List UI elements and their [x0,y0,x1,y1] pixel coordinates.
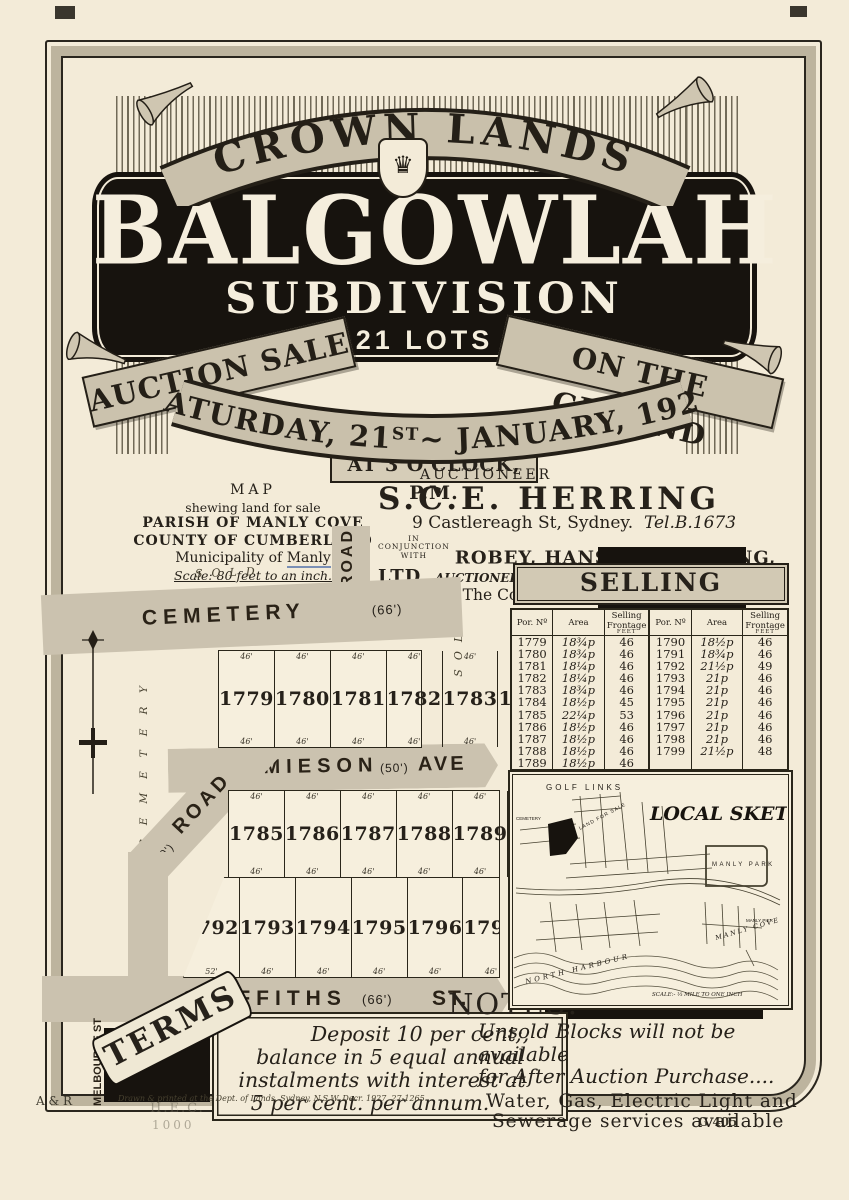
frontage-label: 46' [453,792,508,801]
lot-number: 1786 [285,823,340,845]
notes-line4: Sewerage services available [492,1112,798,1133]
frontage-label: 46' [285,792,340,801]
land-for-sale-block [548,818,578,856]
frontage-label: 46' [219,737,274,746]
frontage-label: 46' [387,652,442,661]
selling-frontages-title: SELLING FRONTAGES [513,563,789,605]
scan-mark [55,6,75,19]
scan-mark [790,6,807,17]
lot-number: 1789 [453,823,508,845]
cemetery-small-label: CEMETERY [516,816,541,821]
legend-title: MAP [128,482,378,500]
lot-1781: 46'178146' [330,651,386,747]
lot-number: 1781 [331,688,386,710]
local-sketch-box: GOLF LINKS LAND FOR SALE CEMETERY LOCAL … [508,770,793,1010]
lot-number: 1787 [341,823,396,845]
frontage-label: 46' [387,737,442,746]
crest-icon: ♛ [378,138,428,198]
lot-1785: 46'178546' [229,791,284,877]
lot-1780: 46'178046' [274,651,330,747]
col-header-portion: Por. Nº [649,609,691,636]
lot-number: 1783 [443,688,498,710]
lot-1782: 46'178246' [386,651,442,747]
lot-1786: 46'178646' [284,791,340,877]
cemetery-road-label: CEMETERY [141,600,306,631]
frontage-row: 177918¾p46179018½p46 [511,636,788,649]
local-sketch-title: LOCAL SKETCH [649,803,787,825]
feet-unit-label: FEET [605,631,649,634]
auctioneer-address: 9 Castlereagh St, Sydney. [412,513,633,533]
legend-municipality: Municipality of [175,550,286,566]
frontage-label: 46' [443,737,498,746]
frontage-label: 46' [341,867,396,876]
legend-line1: shewing land for sale [128,500,378,516]
lot-block-row1: 46'177946'46'178046'46'178146'46'178246'… [218,650,422,748]
frontage-label: 46' [443,652,498,661]
notes-line1: Unsold Blocks will not be available [478,1020,798,1065]
stamp-1000: 1000 [152,1118,195,1132]
sold-label: SOLD [195,565,264,580]
frontage-label: 46' [285,867,340,876]
lot-1793: 179346' [239,878,295,977]
frontage-label: 46' [331,652,386,661]
conjunction-label: IN CONJUNCTION WITH [378,535,450,560]
lot-1795: 179546' [351,878,407,977]
frontage-label: 46' [275,737,330,746]
frontage-row: 178418½p45179521p46 [511,696,788,708]
lot-1796: 179646' [407,878,463,977]
frontage-label: 46' [275,652,330,661]
frontage-row: 178522¼p53179621p46 [511,709,788,721]
date-banner: SATURDAY, 21ST~ JANUARY, 1928 [150,380,714,484]
cemetery-road-width: (66') [372,601,403,617]
col-header-frontage: Selling FrontageFEET [743,609,788,636]
feet-unit-label: FEET [743,631,787,634]
col-header-area: Area [691,609,743,636]
golf-links-label: GOLF LINKS [546,783,623,792]
lot-1783: 46'178346' [442,651,498,747]
lot-number: 1785 [229,823,284,845]
col-header-frontage: Selling FrontageFEET [604,609,649,636]
manly-park-label: MANLY PARK [712,862,775,868]
frontage-row: 178018¾p46179118¾p46 [511,648,788,660]
jamieson-ave-suffix: AVE [418,753,467,777]
north-arrow [78,628,108,800]
col-header-portion: Por. Nº [511,609,553,636]
lot-number: 1795 [352,917,407,939]
lot-number: 1788 [397,823,452,845]
lot-number: 1793 [240,917,295,939]
frontage-label: 46' [296,967,351,976]
frontage-row: 178918½p46 [511,757,788,770]
col-header-area: Area [553,609,605,636]
notes-line2: for After Auction Purchase.... [478,1065,798,1087]
frontage-label: 46' [219,652,274,661]
frontage-row: 178618½p46179721p46 [511,721,788,733]
selling-frontages-table: Por. Nº Area Selling FrontageFEET Por. N… [510,608,789,771]
local-sketch-map: GOLF LINKS LAND FOR SALE CEMETERY LOCAL … [510,772,787,1004]
frontage-label: 46' [453,867,508,876]
imprint-line: Drawn & printed at the Dept. of Lands, S… [118,1094,425,1103]
lot-number: 1782 [387,688,442,710]
lot-1788: 46'178846' [396,791,452,877]
lot-number: 1780 [275,688,330,710]
lot-number: 1796 [408,917,463,939]
road-north-label: ROAD [339,528,357,587]
poster-page: CROWN LANDS ♛ BALGOWLAH SUBDIVISION 21 L… [0,0,849,1200]
lot-1794: 179446' [295,878,351,977]
frontage-label: 46' [229,792,284,801]
frontage-label: 46' [331,737,386,746]
frontage-row: 178818½p46179921½p48 [511,745,788,757]
lot-block-row2: 46'178546'46'178646'46'178746'46'178846'… [228,790,500,878]
frontage-label: 46' [341,792,396,801]
lot-1787: 46'178746' [340,791,396,877]
lot-1779: 46'177946' [219,651,274,747]
frontage-label: 46' [352,967,407,976]
lot-block-row3: 179252'179346'179446'179546'179646'17974… [183,877,500,978]
frontage-label: 46' [397,792,452,801]
frontage-row: 178318¾p46179421p46 [511,684,788,696]
frontage-row: 178118¼p46179221½p49 [511,660,788,672]
auctioneer-name: S.C.E. HERRING [378,483,798,516]
stamp-ar: A & R [36,1094,72,1108]
cemetery-area-label: CEMETERY [138,672,150,847]
auctioneer-phone: Tel.B.1673 [644,513,736,533]
lot-number: 1794 [296,917,351,939]
lot-1789: 46'178946' [452,791,508,877]
frontage-label: 46' [240,967,295,976]
frontage-label: 46' [229,867,284,876]
notes-line3: Water, Gas, Electric Light and [486,1092,798,1113]
frontage-label: 46' [397,867,452,876]
frontage-label: 46' [408,967,463,976]
jamieson-ave-width: (50') [380,761,409,775]
lot-number: 1779 [219,688,274,710]
griffiths-st-width: (66') [362,992,393,1007]
sketch-scale-label: SCALE:- ⅓ MILE TO ONE INCH [652,992,743,998]
frontage-row: 178718½p46179821p46 [511,733,788,745]
date-ordinal: ST [392,424,420,445]
frontage-row: 178218¼p46179321p46 [511,672,788,684]
